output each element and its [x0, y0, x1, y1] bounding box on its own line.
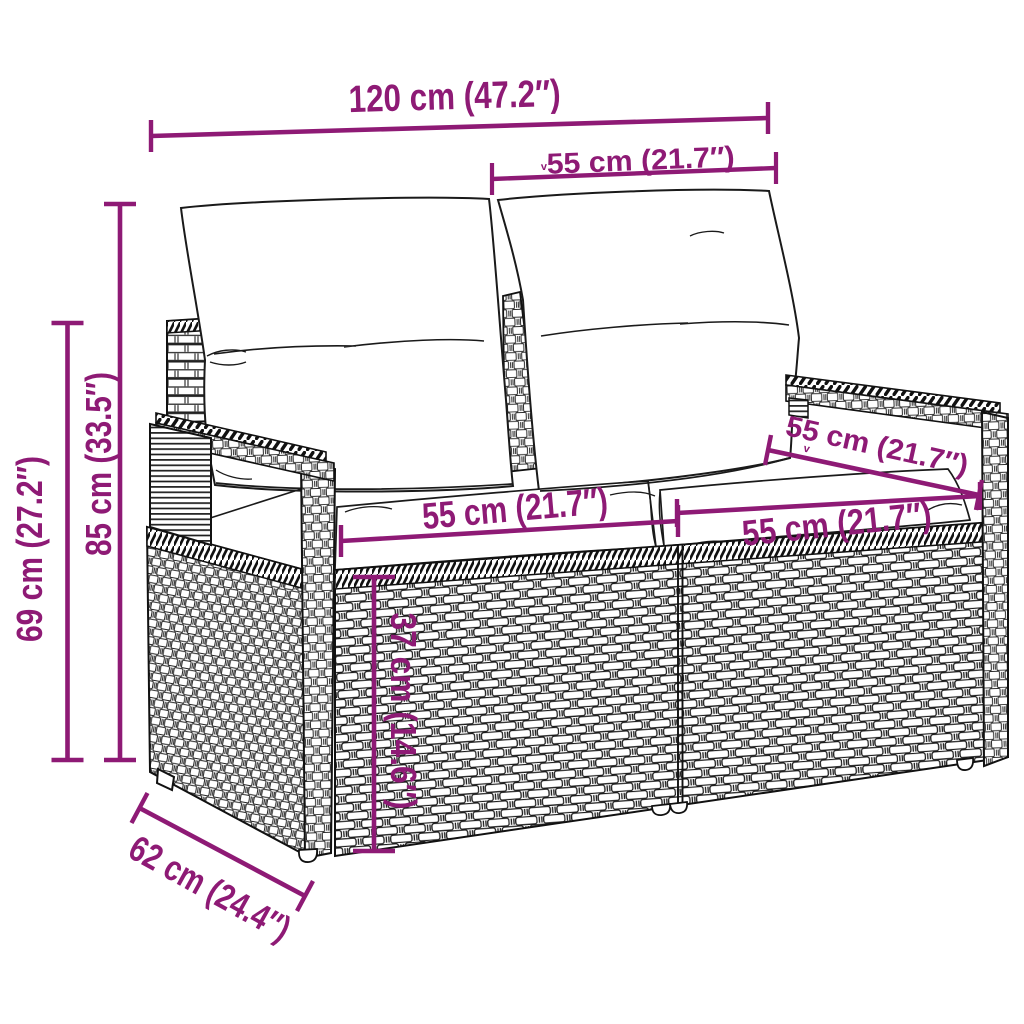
svg-text:85 cm (33.5″): 85 cm (33.5″) [78, 372, 119, 556]
svg-text:v: v [802, 443, 811, 456]
svg-text:37 cm (14.6″): 37 cm (14.6″) [383, 613, 424, 810]
svg-text:69 cm (27.2″): 69 cm (27.2″) [9, 456, 50, 642]
svg-text:55 cm (21.7″): 55 cm (21.7″) [546, 141, 735, 181]
svg-text:120 cm (47.2″): 120 cm (47.2″) [348, 73, 561, 121]
